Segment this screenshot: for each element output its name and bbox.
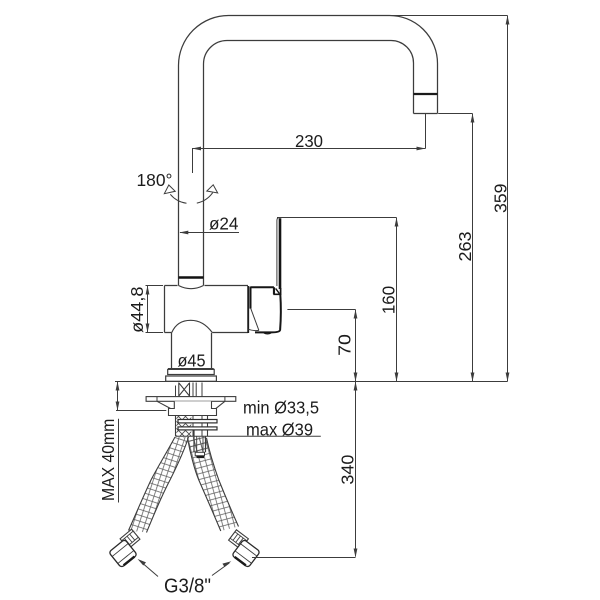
svg-text:ø44,8: ø44,8 bbox=[127, 287, 147, 333]
svg-text:ø45: ø45 bbox=[178, 351, 206, 371]
svg-text:MAX 40mm: MAX 40mm bbox=[98, 419, 118, 501]
svg-text:230: 230 bbox=[295, 131, 323, 151]
svg-text:359: 359 bbox=[490, 184, 510, 214]
svg-text:ø24: ø24 bbox=[209, 214, 239, 234]
svg-text:263: 263 bbox=[455, 232, 475, 262]
svg-text:70: 70 bbox=[335, 334, 355, 356]
svg-text:min Ø33,5: min Ø33,5 bbox=[243, 397, 319, 417]
svg-text:160: 160 bbox=[378, 286, 398, 314]
svg-text:340: 340 bbox=[338, 454, 358, 484]
svg-text:180°: 180° bbox=[137, 170, 173, 190]
svg-text:G3/8": G3/8" bbox=[164, 575, 211, 597]
